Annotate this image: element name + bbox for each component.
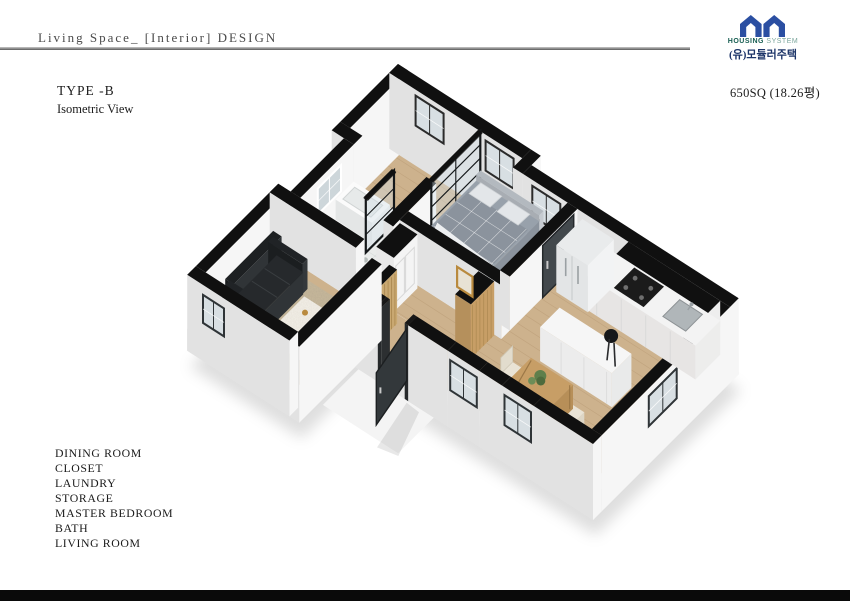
room-legend-item: DINING ROOM: [55, 446, 173, 461]
room-legend: DINING ROOM CLOSET LAUNDRY STORAGE MASTE…: [55, 446, 173, 551]
room-legend-item: LAUNDRY: [55, 476, 173, 491]
room-legend-item: LIVING ROOM: [55, 536, 173, 551]
footer-bar: [0, 590, 850, 601]
room-legend-item: STORAGE: [55, 491, 173, 506]
room-legend-item: BATH: [55, 521, 173, 536]
room-legend-item: MASTER BEDROOM: [55, 506, 173, 521]
room-legend-item: CLOSET: [55, 461, 173, 476]
presentation-slide: { "header": { "title": "Living Space_ [I…: [0, 0, 850, 601]
